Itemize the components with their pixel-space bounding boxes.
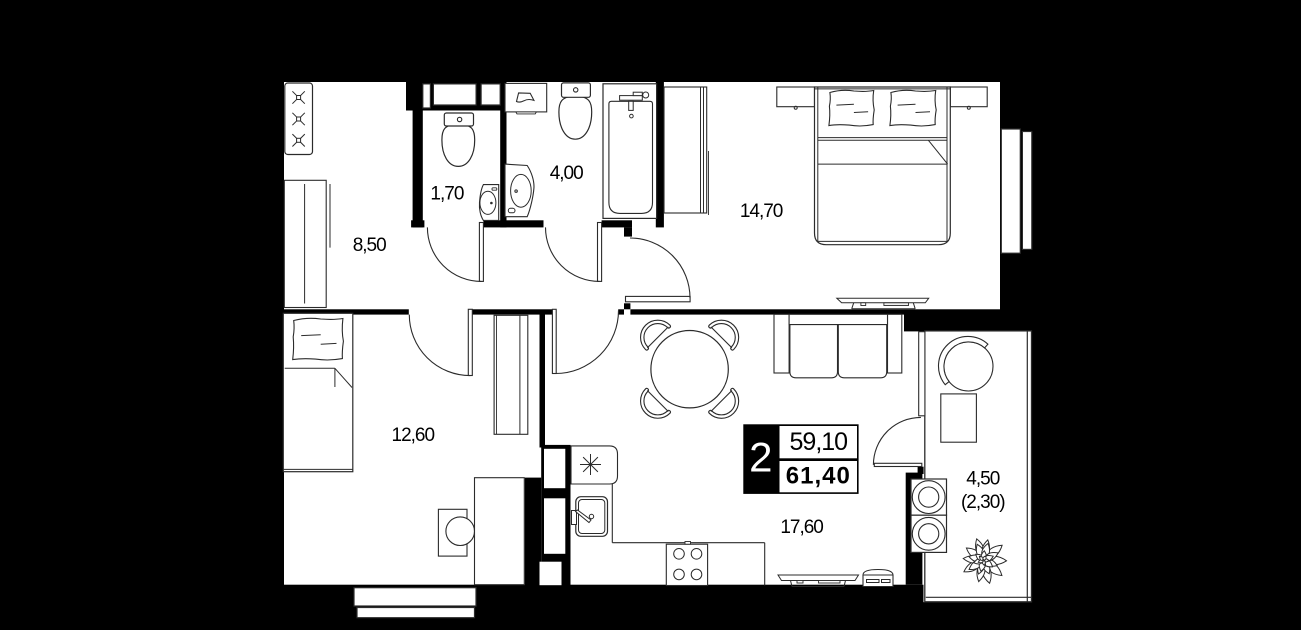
svg-text:59,10: 59,10 <box>790 428 848 456</box>
svg-text:61,40: 61,40 <box>786 463 851 490</box>
svg-text:17,60: 17,60 <box>780 517 823 538</box>
svg-text:12,60: 12,60 <box>392 425 435 446</box>
svg-text:2: 2 <box>749 434 772 481</box>
svg-text:8,50: 8,50 <box>353 235 386 256</box>
svg-text:1,70: 1,70 <box>430 183 463 204</box>
svg-text:(2,30): (2,30) <box>961 492 1005 513</box>
svg-text:14,70: 14,70 <box>740 201 783 222</box>
svg-text:4,50: 4,50 <box>966 469 999 490</box>
svg-text:4,00: 4,00 <box>550 163 583 184</box>
